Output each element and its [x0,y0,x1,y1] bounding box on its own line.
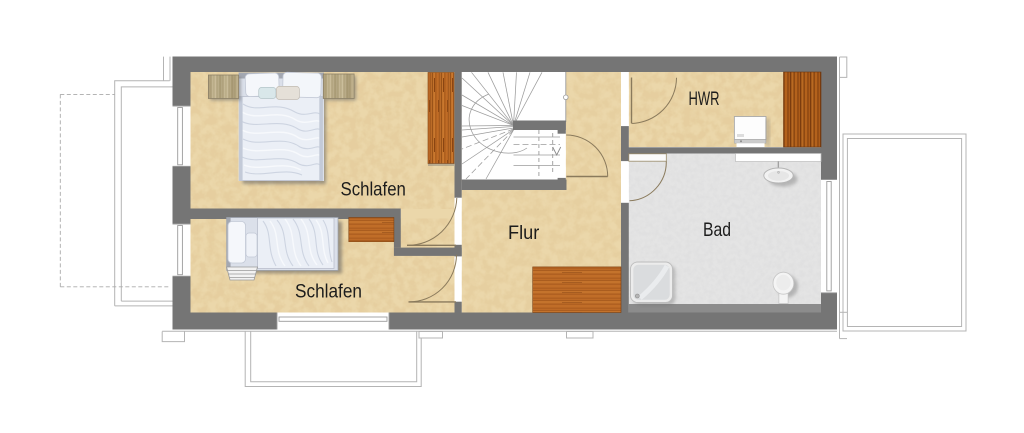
svg-text:HWR: HWR [689,88,720,110]
svg-text:Bad: Bad [703,219,731,241]
svg-text:Schlafen: Schlafen [295,282,362,303]
svg-text:Schlafen: Schlafen [341,180,406,201]
svg-text:Flur: Flur [508,222,540,244]
